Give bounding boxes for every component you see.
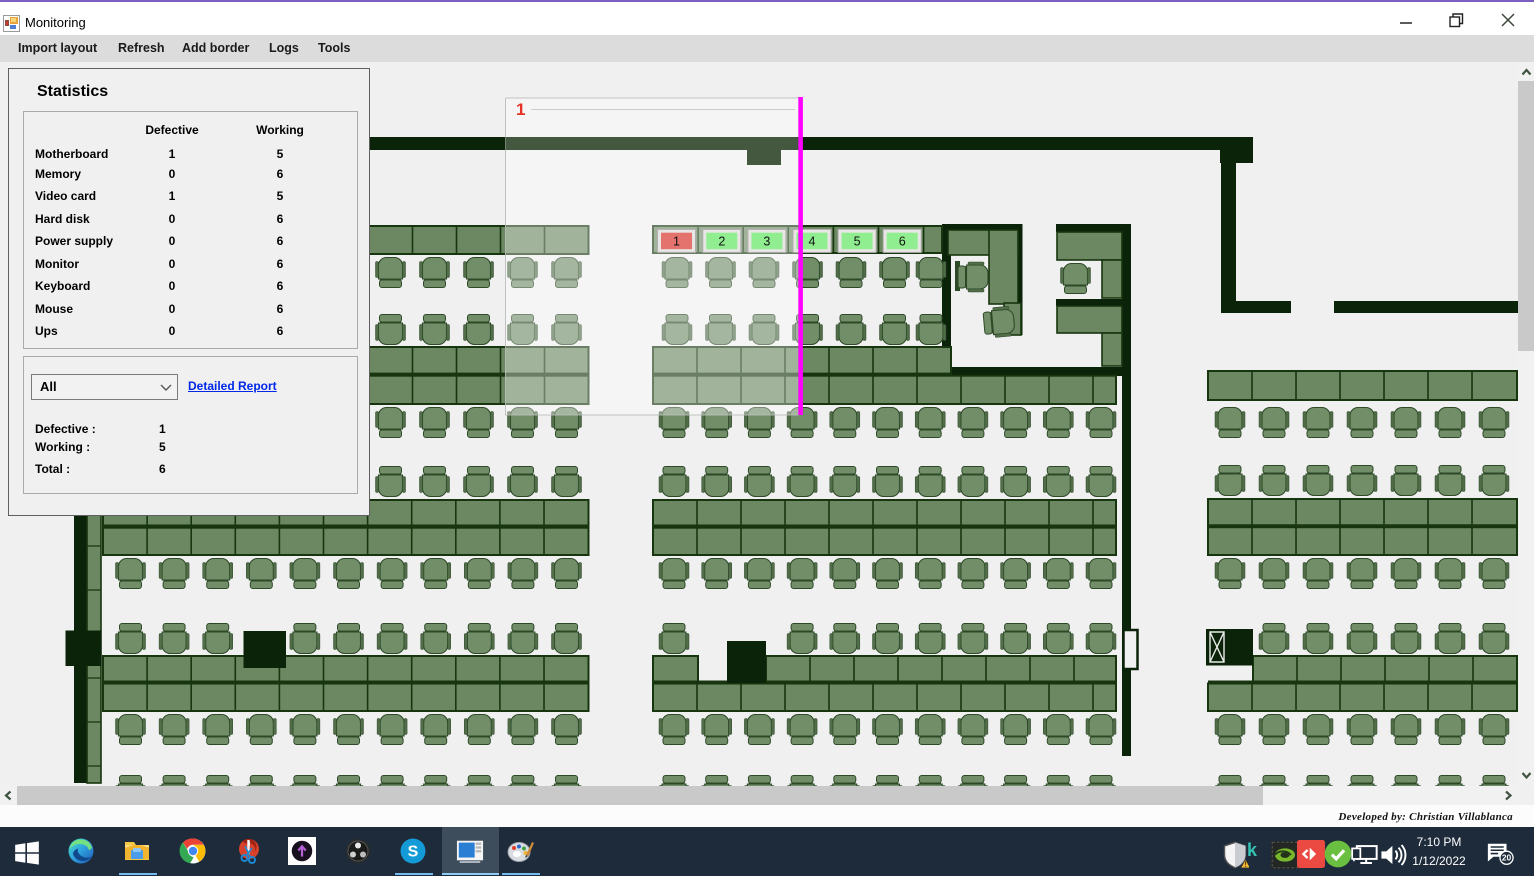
svg-text:S: S <box>408 844 419 861</box>
svg-text:6: 6 <box>899 235 906 249</box>
svg-text:1: 1 <box>516 100 525 119</box>
svg-text:20: 20 <box>1502 853 1512 863</box>
svg-text:5: 5 <box>854 235 861 249</box>
svg-text:2: 2 <box>718 235 725 249</box>
svg-text:4: 4 <box>809 235 816 249</box>
svg-text:1: 1 <box>673 235 680 249</box>
svg-text:3: 3 <box>763 235 770 249</box>
